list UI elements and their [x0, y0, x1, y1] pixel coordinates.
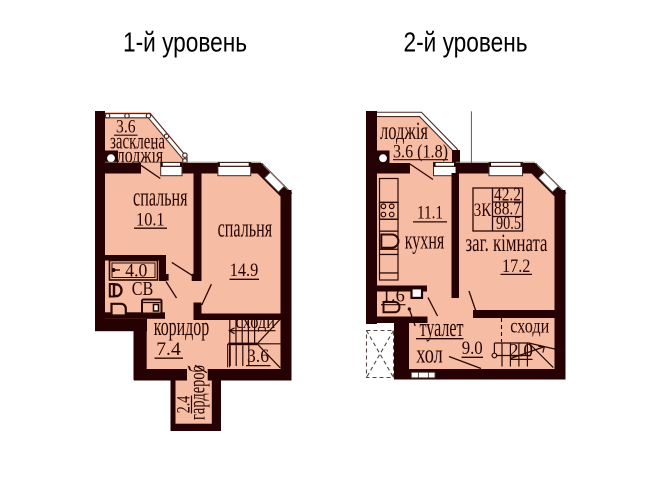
- svg-text:7.4: 7.4: [156, 340, 181, 360]
- svg-text:1.6: 1.6: [382, 287, 405, 307]
- svg-text:11.1: 11.1: [417, 203, 443, 223]
- svg-text:хол: хол: [416, 339, 443, 368]
- svg-text:заг. кімната: заг. кімната: [466, 230, 548, 257]
- svg-text:сходи: сходи: [236, 312, 276, 333]
- svg-text:1-й уровень: 1-й уровень: [123, 27, 247, 58]
- svg-text:3.6: 3.6: [247, 347, 269, 367]
- svg-text:2-й уровень: 2-й уровень: [404, 27, 528, 58]
- svg-text:сходи: сходи: [510, 314, 549, 338]
- svg-text:2.0: 2.0: [509, 341, 533, 361]
- svg-text:гардероб: гардероб: [185, 365, 210, 420]
- svg-text:спальня: спальня: [218, 214, 273, 243]
- svg-text:коридор: коридор: [154, 312, 210, 341]
- svg-text:кухня: кухня: [405, 225, 445, 254]
- svg-text:туалет: туалет: [420, 313, 464, 342]
- svg-text:СВ: СВ: [132, 279, 154, 300]
- svg-text:14.9: 14.9: [230, 261, 259, 281]
- svg-text:лоджія: лоджія: [380, 118, 428, 145]
- svg-text:лоджія: лоджія: [117, 143, 164, 168]
- svg-text:спальня: спальня: [133, 183, 188, 212]
- svg-text:3К: 3К: [474, 200, 492, 221]
- svg-text:9.0: 9.0: [462, 339, 483, 359]
